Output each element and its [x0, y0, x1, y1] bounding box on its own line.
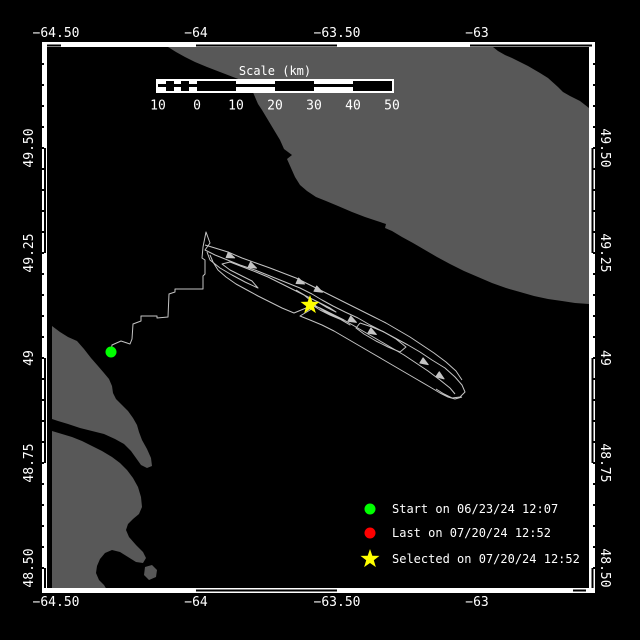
axis-label-longitude-top: −63	[465, 27, 488, 41]
axis-label-longitude-bottom: −63.50	[314, 596, 361, 610]
axis-label-latitude-right: 49	[597, 350, 611, 366]
land-polygon	[144, 565, 157, 580]
axis-label-latitude-right: 49.25	[597, 233, 611, 272]
axis-label-longitude-top: −63.50	[314, 27, 361, 41]
axis-label-latitude-left: 48.50	[23, 548, 37, 587]
axis-label-latitude-left: 49	[23, 350, 37, 366]
legend-star-icon	[358, 547, 384, 571]
scale-bar-number: 10	[228, 99, 244, 114]
track-segment	[207, 252, 455, 394]
scale-bar-number: 30	[306, 99, 322, 114]
axis-label-latitude-right: 48.50	[597, 548, 611, 587]
axis-label-latitude-left: 49.25	[23, 233, 37, 272]
axis-label-longitude-top: −64.50	[33, 27, 80, 41]
scale-bar-number: 10	[150, 99, 166, 114]
legend-label: Start on 06/23/24 12:07	[392, 502, 558, 516]
track-segment	[210, 255, 462, 399]
axis-label-longitude-bottom: −64	[184, 596, 207, 610]
legend-label: Last on 07/20/24 12:52	[392, 526, 551, 540]
scale-bar-segment	[314, 81, 353, 91]
track-direction-arrow	[314, 286, 324, 295]
scale-bar-segment	[181, 81, 189, 91]
track-direction-arrow	[436, 372, 446, 382]
scale-bar-number: 40	[345, 99, 361, 114]
scale-bar-segment	[236, 81, 275, 91]
legend-label: Selected on 07/20/24 12:52	[392, 552, 580, 566]
legend-item: Last on 07/20/24 12:52	[358, 521, 551, 545]
scale-bar-segment	[158, 81, 166, 91]
legend-dot-icon	[358, 497, 384, 521]
start-marker[interactable]	[106, 347, 117, 358]
legend-item: Start on 06/23/24 12:07	[358, 497, 558, 521]
track-segment	[296, 290, 336, 312]
axis-label-latitude-left: 49.50	[23, 128, 37, 167]
track-path	[111, 232, 465, 399]
scale-bar-segment	[166, 81, 174, 91]
scale-bar-title: Scale (km)	[239, 64, 311, 78]
axis-label-latitude-right: 49.50	[597, 128, 611, 167]
axis-label-latitude-left: 48.75	[23, 443, 37, 482]
axis-label-latitude-right: 48.75	[597, 443, 611, 482]
scale-bar-number: 20	[267, 99, 283, 114]
scale-bar-number: 0	[193, 99, 201, 114]
scale-bar-segment	[174, 81, 182, 91]
land-polygon	[52, 431, 146, 590]
scale-bar-segment	[197, 81, 236, 91]
scale-bar	[156, 79, 394, 93]
axis-label-longitude-bottom: −64.50	[33, 596, 80, 610]
scale-bar-segment	[353, 81, 392, 91]
tracking-map-screen: −64.50−64−63.50−63−64.50−64−63.50−6349.5…	[0, 0, 640, 640]
legend-dot-icon	[358, 521, 384, 545]
axis-label-longitude-top: −64	[184, 27, 207, 41]
scale-bar-segment	[189, 81, 197, 91]
scale-bar-number: 50	[384, 99, 400, 114]
track-direction-arrow	[420, 358, 430, 367]
track-markers	[106, 295, 320, 358]
track-segment	[111, 232, 465, 398]
axis-label-longitude-bottom: −63	[465, 596, 488, 610]
scale-bar-segment	[275, 81, 314, 91]
legend-item: Selected on 07/20/24 12:52	[358, 547, 580, 571]
